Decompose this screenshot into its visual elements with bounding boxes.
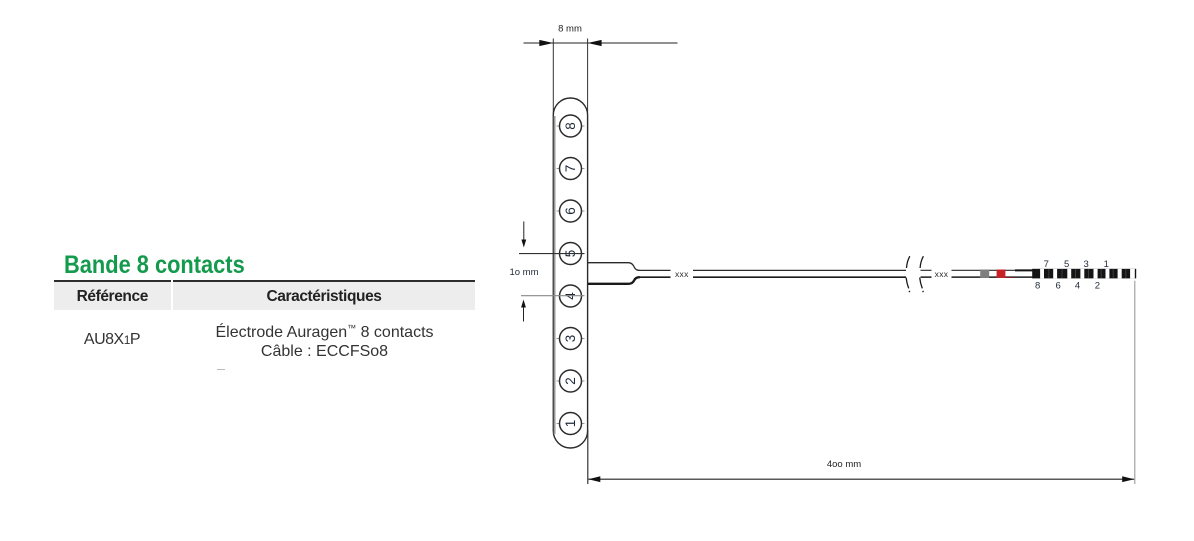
svg-text:2: 2 xyxy=(1095,281,1100,292)
svg-text:6: 6 xyxy=(563,207,578,215)
svg-text:5: 5 xyxy=(1064,259,1069,270)
svg-text:8: 8 xyxy=(563,122,578,130)
svg-text:4oo mm: 4oo mm xyxy=(827,459,861,470)
svg-text:6: 6 xyxy=(1056,281,1061,292)
svg-text:8: 8 xyxy=(1035,281,1040,292)
svg-text:8 mm: 8 mm xyxy=(558,24,582,35)
svg-text:7: 7 xyxy=(1044,259,1049,270)
svg-text:1: 1 xyxy=(563,420,578,428)
svg-text:3: 3 xyxy=(563,335,578,343)
svg-text:3: 3 xyxy=(1084,259,1089,270)
svg-text:xxx: xxx xyxy=(935,269,949,279)
svg-text:xxx: xxx xyxy=(675,269,689,279)
svg-text:2: 2 xyxy=(563,377,578,385)
svg-text:4: 4 xyxy=(1075,281,1080,292)
svg-text:1o mm: 1o mm xyxy=(509,267,538,278)
svg-text:1: 1 xyxy=(1104,259,1109,270)
svg-text:7: 7 xyxy=(563,165,578,173)
